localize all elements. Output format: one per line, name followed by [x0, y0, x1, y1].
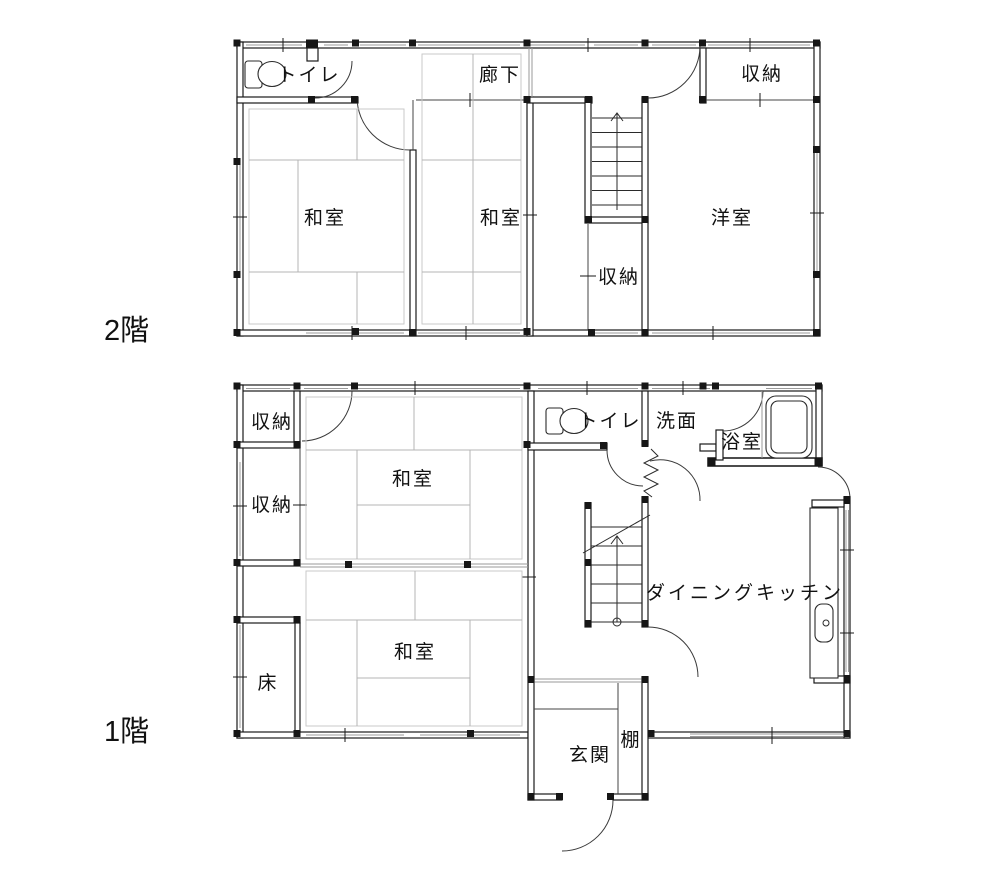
- floor-plan-page: トイレ 廊下 収納 和室 和室 収納 洋室 2階: [0, 0, 1000, 885]
- room-label-storage-1f-upper: 収納: [251, 411, 293, 433]
- floor-plan-drawing: トイレ 廊下 収納 和室 和室 収納 洋室 2階: [0, 0, 1000, 885]
- room-label-shelf: 棚: [620, 729, 641, 751]
- second-floor-tatami-lines: [249, 54, 521, 324]
- room-label-storage-2f-stairs: 収納: [598, 266, 640, 288]
- room-label-storage-1f-lower: 収納: [251, 494, 293, 516]
- room-label-dining-kitchen: ダイニングキッチン: [646, 582, 844, 604]
- room-label-entrance: 玄関: [569, 744, 611, 766]
- floor-label-2f: 2階: [104, 315, 149, 347]
- room-label-bathroom: 浴室: [721, 431, 763, 453]
- first-floor-sliding-doors: [293, 448, 536, 577]
- floor-label-1f: 1階: [104, 716, 149, 748]
- room-label-tokonoma: 床: [257, 672, 278, 694]
- room-label-toilet-2f: トイレ: [277, 65, 340, 86]
- accordion-curtain-symbol: [644, 449, 658, 497]
- first-floor-stairs: [583, 515, 650, 626]
- room-label-washitsu-2f-right: 和室: [480, 207, 522, 229]
- second-floor-stairs: [592, 113, 642, 210]
- room-label-corridor: 廊下: [479, 64, 521, 86]
- room-label-washroom: 洗面: [656, 410, 698, 432]
- room-label-western-room: 洋室: [711, 207, 753, 229]
- room-label-storage-2f-top: 収納: [741, 63, 783, 85]
- kitchen-sink-icon: [815, 604, 833, 642]
- room-label-washitsu-1f-bottom: 和室: [394, 641, 436, 663]
- room-label-washitsu-2f-left: 和室: [304, 207, 346, 229]
- room-label-washitsu-1f-top: 和室: [392, 468, 434, 490]
- first-floor-tatami-lines: [306, 397, 522, 726]
- second-floor-sliding-doors: [416, 93, 814, 330]
- bathtub-icon: [762, 391, 812, 458]
- second-floor-plan: トイレ 廊下 収納 和室 和室 収納 洋室: [233, 38, 824, 340]
- first-floor-plan: 収納 収納 和室 トイレ 洗面 浴室 ダイニングキッチン 和室 床 玄関 棚: [233, 381, 854, 851]
- room-label-toilet-1f: トイレ: [578, 411, 641, 432]
